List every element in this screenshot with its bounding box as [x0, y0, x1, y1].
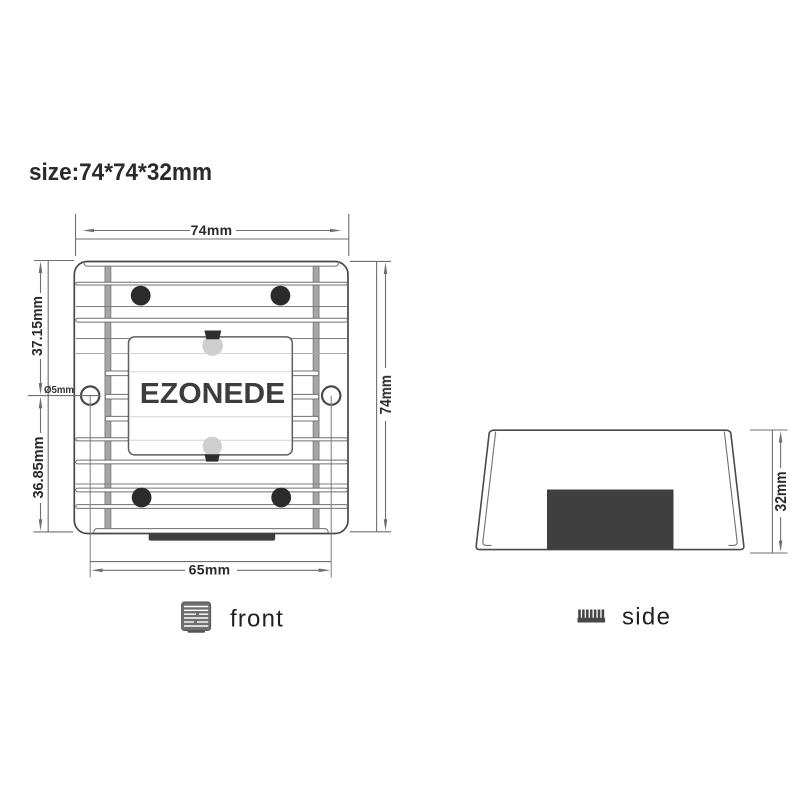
svg-text:37.15mm: 37.15mm — [30, 296, 46, 356]
svg-text:size:74*74*32mm: size:74*74*32mm — [29, 159, 212, 186]
svg-text:74mm: 74mm — [378, 375, 395, 415]
svg-text:36.85mm: 36.85mm — [31, 437, 47, 499]
svg-text:EZONEDE: EZONEDE — [140, 378, 286, 410]
svg-text:Ø5mm: Ø5mm — [44, 384, 74, 396]
svg-text:front: front — [230, 606, 284, 633]
svg-text:74mm: 74mm — [191, 222, 233, 238]
svg-text:32mm: 32mm — [773, 472, 790, 512]
svg-text:65mm: 65mm — [189, 562, 231, 578]
svg-text:side: side — [622, 604, 671, 631]
